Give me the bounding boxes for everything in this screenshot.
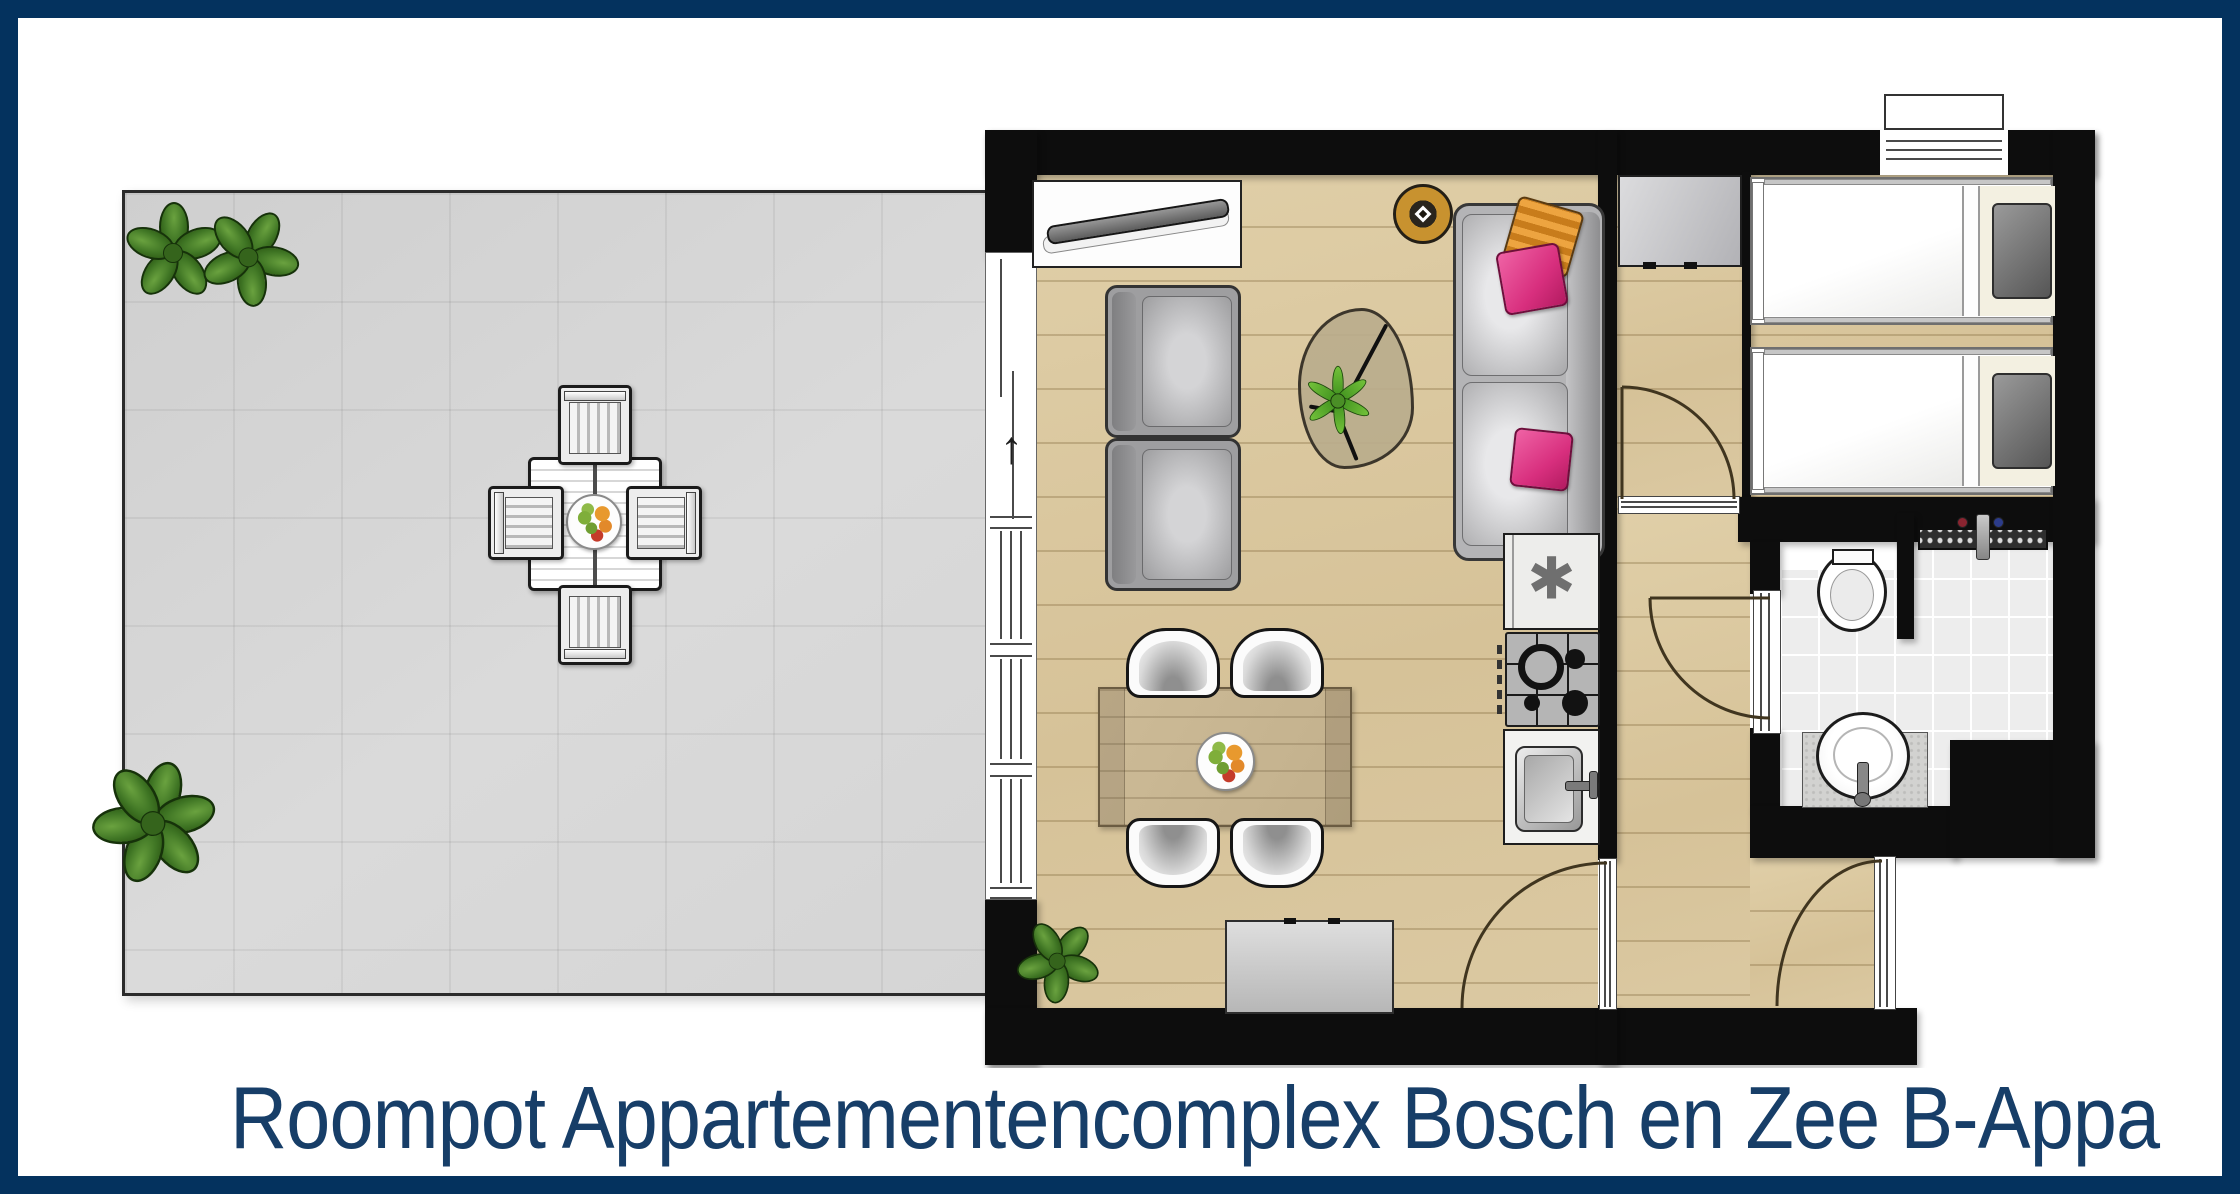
dining-chair bbox=[1126, 628, 1220, 698]
hob-knob bbox=[1497, 645, 1502, 654]
living-window-strip bbox=[985, 252, 1037, 900]
pillow-pink bbox=[1509, 427, 1574, 492]
ceiling-lamp-icon bbox=[1393, 184, 1453, 244]
dining-chair bbox=[1230, 628, 1324, 698]
wall-bathroom-left-a bbox=[1750, 542, 1780, 594]
bedroom-window-sill bbox=[1884, 94, 2004, 130]
armchair bbox=[1105, 438, 1241, 591]
title-bar: Roompot Appartementencomplex Bosch en Ze… bbox=[18, 1068, 2222, 1172]
hallway-floor bbox=[1615, 508, 1750, 1008]
bathroom-door-sill bbox=[1753, 590, 1781, 734]
freezer-star-icon: ✱ bbox=[1505, 550, 1598, 608]
wall-shower-stub bbox=[1897, 513, 1914, 639]
dining-chair bbox=[1230, 818, 1324, 888]
bed-pillow bbox=[1992, 373, 2052, 469]
toilet bbox=[1817, 552, 1887, 632]
wardrobe bbox=[1618, 175, 1742, 267]
fridge: ✱ bbox=[1503, 533, 1600, 630]
living-door-sill bbox=[1599, 858, 1617, 1010]
entrance-door-sill bbox=[1874, 856, 1896, 1010]
terrace-chair bbox=[488, 486, 564, 560]
bed-pillow bbox=[1992, 203, 2052, 299]
basin-faucet-base bbox=[1854, 792, 1871, 807]
floor-plan-page: ↑ bbox=[0, 0, 2240, 1194]
hob-knob bbox=[1497, 660, 1502, 669]
sideboard bbox=[1225, 920, 1394, 1014]
wall-living-hall-low bbox=[1598, 1005, 1617, 1065]
terrace-chair bbox=[558, 585, 632, 665]
hob-knob bbox=[1497, 705, 1502, 714]
shower-mixer-icon bbox=[1976, 514, 1990, 560]
hob-knob bbox=[1497, 690, 1502, 699]
tv-shelf bbox=[1032, 180, 1242, 268]
wall-left-upper bbox=[985, 130, 1037, 258]
hallway-floor bbox=[1750, 856, 1890, 1008]
dining-fruit-bowl-icon bbox=[1196, 732, 1255, 791]
hob-knob bbox=[1497, 675, 1502, 684]
wall-right bbox=[2053, 130, 2095, 858]
armchair bbox=[1105, 285, 1241, 438]
kitchen-sink bbox=[1503, 729, 1600, 845]
wall-bottom bbox=[985, 1008, 1917, 1065]
dining-chair bbox=[1126, 818, 1220, 888]
terrace-chair bbox=[558, 385, 632, 465]
terrace bbox=[122, 190, 991, 996]
gas-hob bbox=[1505, 632, 1600, 727]
single-bed bbox=[1750, 347, 2053, 495]
pillow-pink bbox=[1495, 242, 1569, 316]
entrance-arrow-icon: ↑ bbox=[1000, 424, 1023, 470]
terrace-fruit-bowl-icon bbox=[566, 494, 622, 550]
single-bed bbox=[1750, 177, 2053, 325]
cold-tap-dot bbox=[1993, 517, 2004, 528]
wall-bathroom-bottom bbox=[1750, 806, 1957, 858]
bedroom-window bbox=[1880, 130, 2008, 175]
page-title: Roompot Appartementencomplex Bosch en Ze… bbox=[230, 1068, 2159, 1168]
hot-tap-dot bbox=[1957, 517, 1968, 528]
terrace-chair bbox=[626, 486, 702, 560]
wall-bathroom-left-b bbox=[1750, 728, 1780, 810]
bedroom-door-sill bbox=[1618, 496, 1740, 514]
